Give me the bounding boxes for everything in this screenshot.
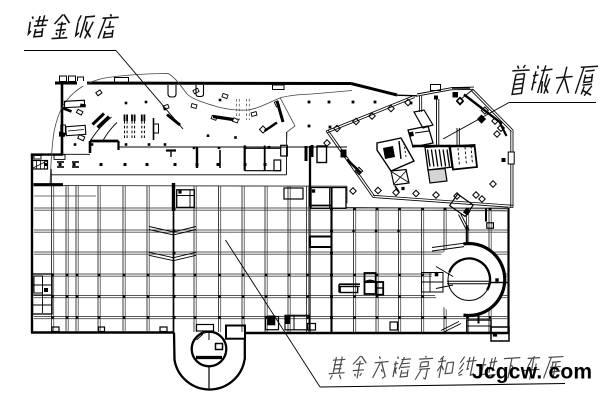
- svg-text:Jcgcw. com: Jcgcw. com: [472, 361, 592, 384]
